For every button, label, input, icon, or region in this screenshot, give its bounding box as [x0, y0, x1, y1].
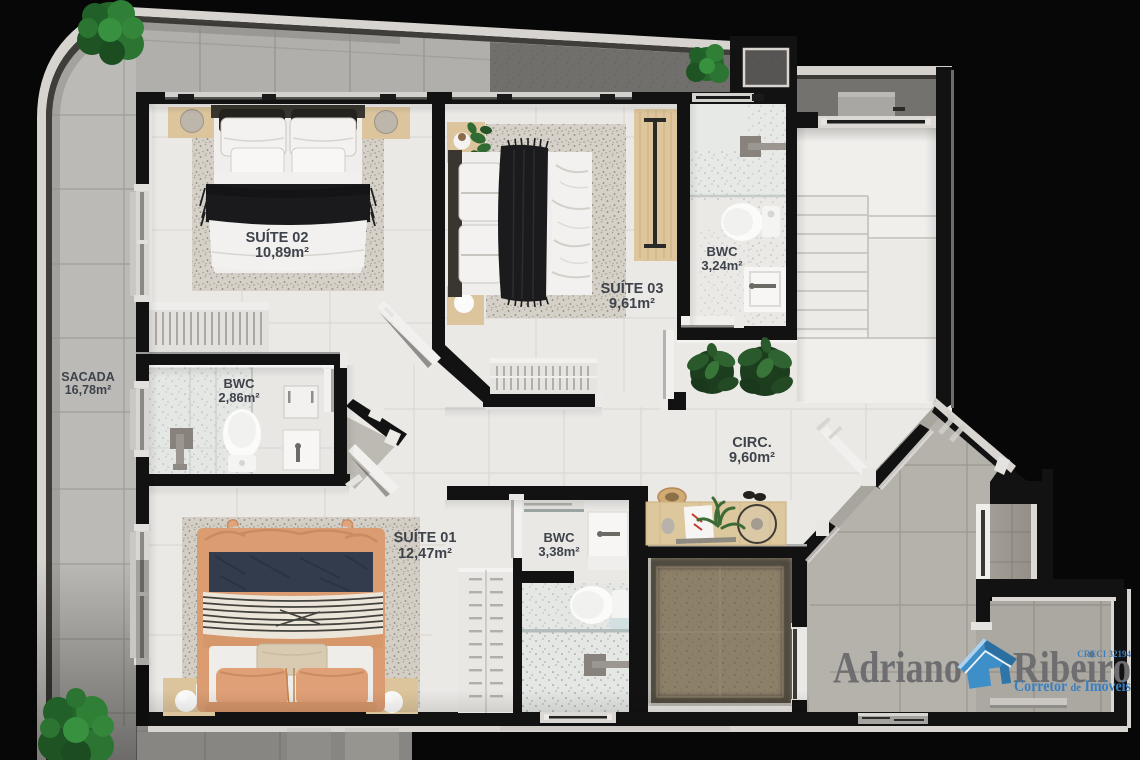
svg-text:Adriano: Adriano	[833, 643, 962, 692]
svg-text:SACADA: SACADA	[61, 370, 114, 384]
svg-text:Corretor de Imóveis: Corretor de Imóveis	[1014, 678, 1131, 695]
svg-text:16,78m²: 16,78m²	[65, 383, 112, 397]
svg-text:2,86m²: 2,86m²	[218, 390, 260, 405]
svg-text:SUÍTE 01: SUÍTE 01	[394, 529, 457, 546]
svg-text:9,61m²: 9,61m²	[609, 296, 655, 312]
svg-text:12,47m²: 12,47m²	[398, 546, 452, 562]
svg-text:BWC: BWC	[706, 244, 738, 259]
svg-text:9,60m²: 9,60m²	[729, 450, 775, 466]
svg-text:SUÍTE 03: SUÍTE 03	[601, 280, 664, 297]
svg-text:BWC: BWC	[223, 376, 255, 391]
svg-text:3,24m²: 3,24m²	[701, 258, 743, 273]
svg-text:CIRC.: CIRC.	[732, 435, 771, 451]
svg-text:BWC: BWC	[543, 530, 575, 545]
svg-text:CRECI 32194: CRECI 32194	[1077, 649, 1131, 659]
svg-text:SUÍTE 02: SUÍTE 02	[246, 229, 309, 246]
svg-text:3,38m²: 3,38m²	[538, 544, 580, 559]
svg-text:10,89m²: 10,89m²	[255, 245, 309, 261]
